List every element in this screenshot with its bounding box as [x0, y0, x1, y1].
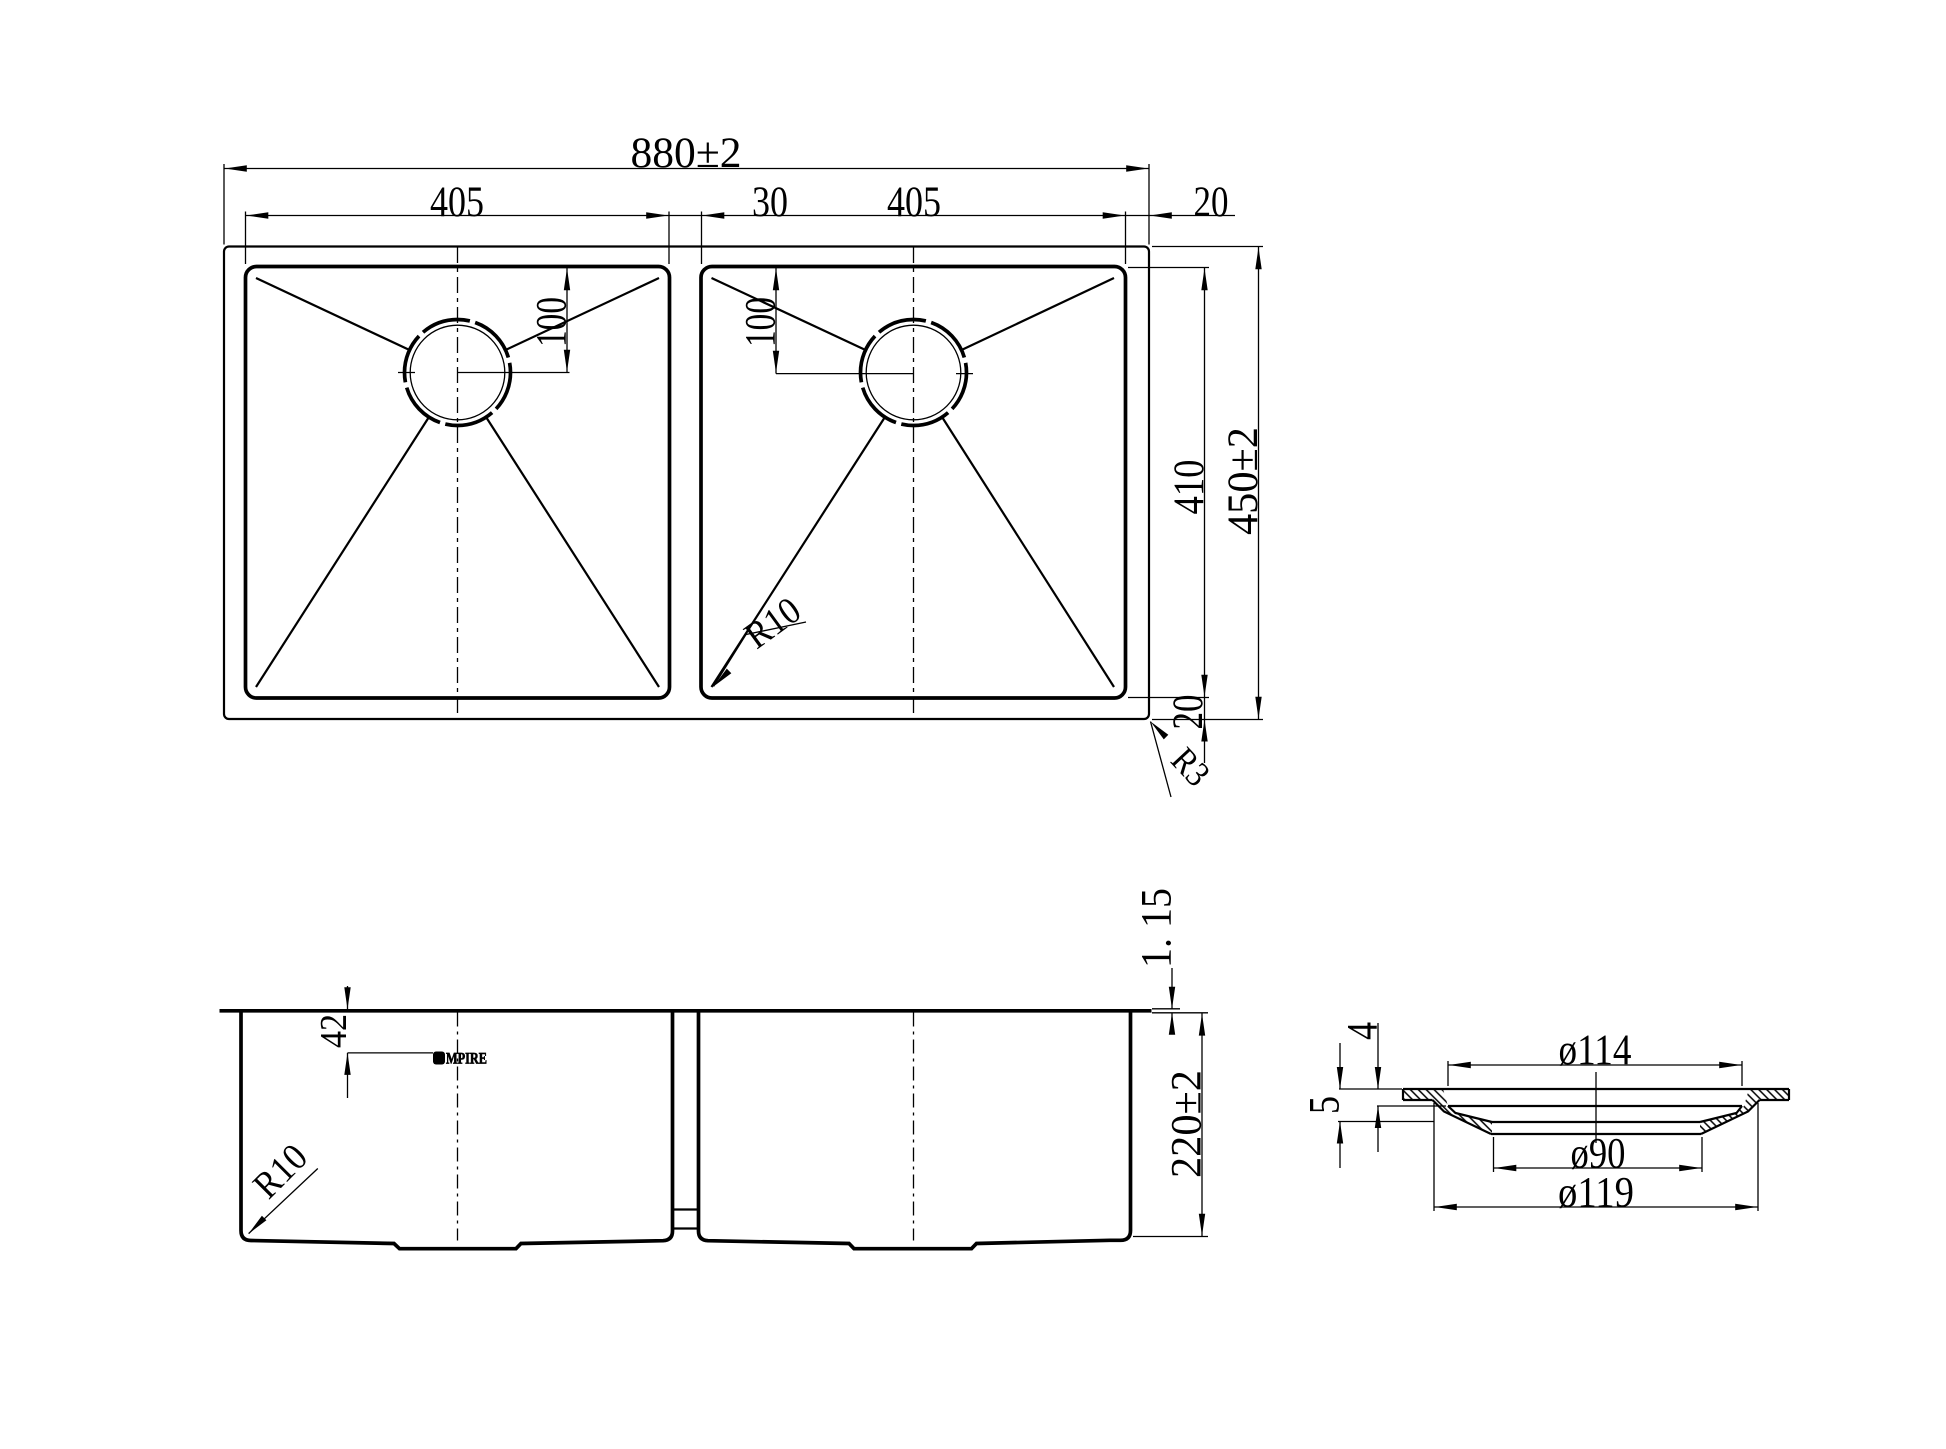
svg-text:5: 5 — [1302, 1096, 1349, 1114]
svg-text:405: 405 — [887, 179, 941, 226]
svg-text:220±2: 220±2 — [1164, 1070, 1211, 1178]
svg-text:410: 410 — [1166, 460, 1213, 515]
svg-text:100: 100 — [738, 297, 785, 347]
svg-text:4: 4 — [1340, 1022, 1387, 1040]
svg-text:30: 30 — [752, 179, 788, 226]
svg-text:450±2: 450±2 — [1220, 427, 1267, 535]
svg-text:ø119: ø119 — [1558, 1170, 1634, 1217]
svg-text:405: 405 — [430, 179, 484, 226]
svg-text:880±2: 880±2 — [631, 130, 742, 177]
svg-text:20: 20 — [1165, 695, 1212, 730]
svg-text:MPIRE: MPIRE — [446, 1051, 487, 1068]
svg-text:1. 15: 1. 15 — [1134, 888, 1181, 968]
svg-text:20: 20 — [1194, 179, 1229, 226]
svg-text:100: 100 — [529, 297, 576, 347]
svg-text:42: 42 — [313, 1014, 355, 1048]
svg-text:ø114: ø114 — [1559, 1027, 1632, 1074]
